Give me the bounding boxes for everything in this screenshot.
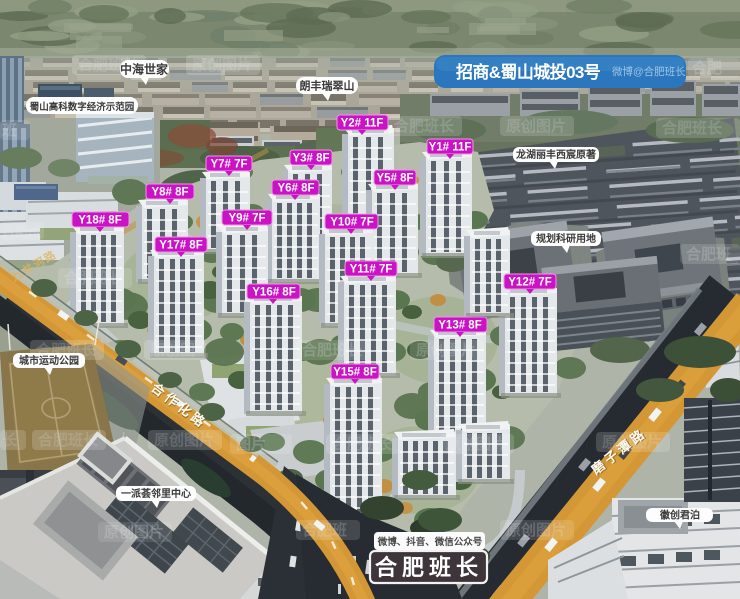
svg-text:原创图片: 原创图片	[446, 435, 506, 453]
svg-text:中海世家: 中海世家	[120, 61, 169, 76]
svg-text:合肥班长: 合肥班长	[63, 269, 125, 287]
svg-text:Y9# 7F: Y9# 7F	[228, 213, 265, 225]
svg-text:微博、抖音、微信公众号: 微博、抖音、微信公众号	[377, 536, 483, 548]
svg-text:Y12# 7F: Y12# 7F	[508, 277, 551, 289]
svg-text:Y5# 8F: Y5# 8F	[376, 173, 413, 185]
svg-text:Y15# 8F: Y15# 8F	[333, 367, 376, 379]
svg-text:合肥班长: 合肥班长	[661, 119, 723, 137]
svg-text:合肥班: 合肥班	[301, 521, 347, 539]
svg-text:Y10# 7F: Y10# 7F	[330, 217, 373, 229]
svg-text:合肥班长: 合肥班长	[37, 431, 99, 449]
svg-text:Y8# 8F: Y8# 8F	[151, 187, 188, 199]
svg-text:原创图: 原创图	[150, 341, 195, 359]
svg-text:合肥班长: 合肥班长	[301, 341, 363, 359]
svg-text:Y11# 7F: Y11# 7F	[350, 264, 393, 276]
svg-text:龙湖丽丰西宸原著: 龙湖丽丰西宸原著	[515, 148, 596, 161]
svg-text:合肥班长: 合肥班长	[375, 555, 483, 580]
svg-text:Y17# 8F: Y17# 8F	[159, 240, 202, 252]
svg-text:Y16# 8F: Y16# 8F	[252, 287, 295, 299]
svg-text:微博@合肥班长: 微博@合肥班长	[612, 65, 686, 78]
svg-text:合肥班长: 合肥班长	[331, 435, 393, 453]
svg-text:原创图片: 原创图片	[104, 523, 164, 541]
svg-text:长: 长	[2, 431, 18, 449]
svg-text:朗丰瑞翠山: 朗丰瑞翠山	[300, 79, 355, 93]
svg-text:Y7# 7F: Y7# 7F	[210, 159, 247, 171]
svg-text:班: 班	[2, 121, 17, 139]
svg-text:Y13# 8F: Y13# 8F	[438, 320, 481, 332]
svg-text:原创图片: 原创图片	[154, 431, 214, 449]
svg-text:Y1# 11F: Y1# 11F	[429, 142, 472, 154]
svg-text:Y6# 8F: Y6# 8F	[277, 183, 314, 195]
svg-text:Y2# 11F: Y2# 11F	[341, 118, 384, 130]
svg-text:Y18# 8F: Y18# 8F	[78, 215, 121, 227]
svg-text:城市运动公园: 城市运动公园	[19, 354, 79, 367]
svg-text:合肥班长: 合肥班长	[393, 117, 455, 135]
svg-text:原创图片: 原创图片	[192, 56, 252, 74]
svg-text:招商&蜀山城投03号: 招商&蜀山城投03号	[456, 62, 601, 82]
svg-text:图片: 图片	[236, 435, 266, 453]
svg-text:合肥: 合肥	[691, 59, 722, 77]
svg-text:规划科研用地: 规划科研用地	[536, 232, 596, 245]
svg-text:徽创君泊: 徽创君泊	[659, 509, 700, 522]
svg-text:合肥班: 合肥班	[2, 224, 41, 239]
svg-text:一派荟邻里中心: 一派荟邻里中心	[121, 487, 191, 500]
svg-text:原创图片: 原创图片	[506, 521, 566, 539]
svg-text:蜀山高科数字经济示范园: 蜀山高科数字经济示范园	[30, 101, 135, 113]
svg-text:合肥班: 合肥班	[685, 245, 731, 263]
svg-text:原创图片: 原创图片	[416, 341, 476, 359]
svg-text:Y3# 8F: Y3# 8F	[292, 153, 329, 165]
svg-text:原创图片: 原创图片	[506, 117, 566, 135]
